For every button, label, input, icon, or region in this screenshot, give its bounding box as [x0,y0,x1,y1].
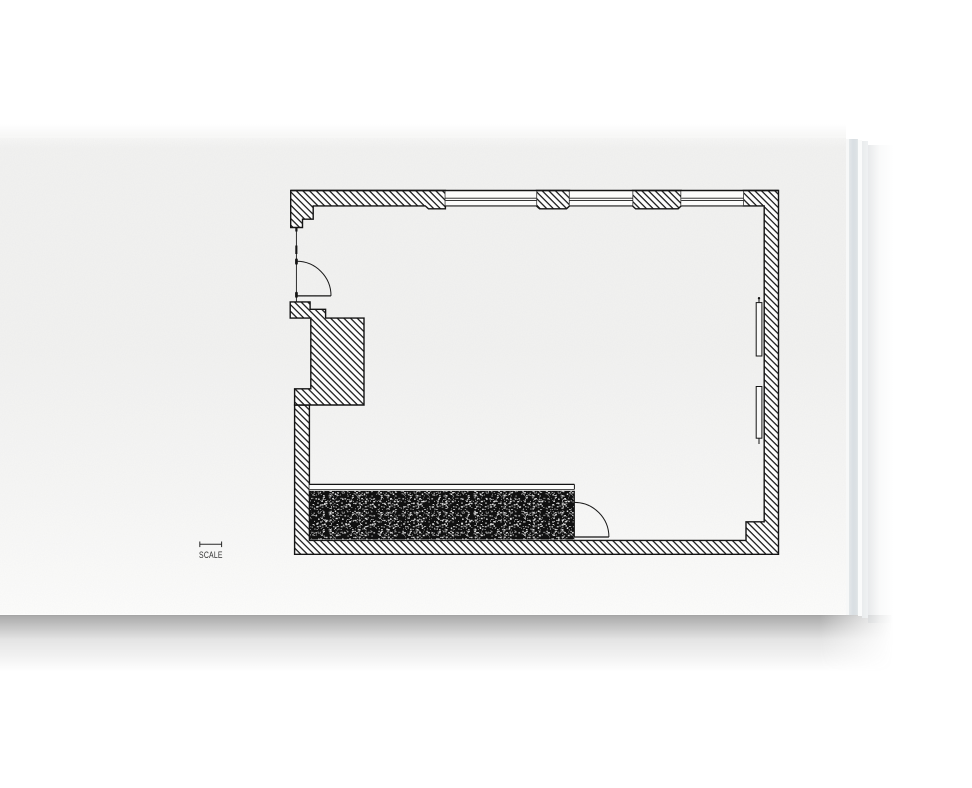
svg-text:SCALE: SCALE [199,549,223,560]
